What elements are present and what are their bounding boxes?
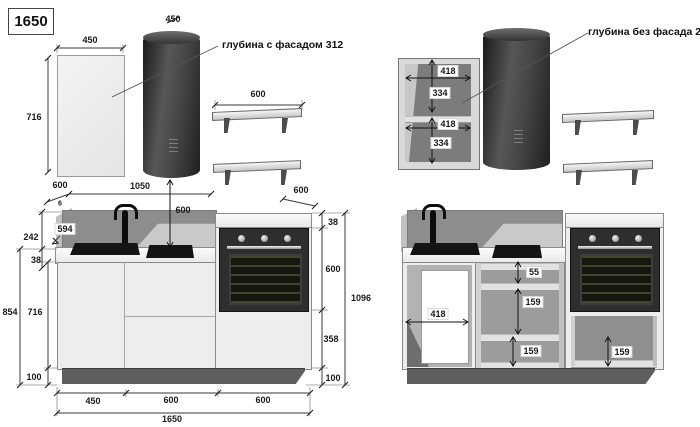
hood-cylinder — [143, 33, 200, 178]
shelf-bracket — [632, 170, 638, 185]
dim-width-2: 600 — [163, 395, 178, 405]
wall-door-panel — [57, 55, 125, 177]
dim-left-total: 854 — [2, 307, 17, 317]
dim-width-3: 600 — [255, 395, 270, 405]
wall-shelf — [562, 112, 654, 121]
dim-hob-drop: 600 — [175, 205, 190, 215]
shelf-bracket — [281, 170, 287, 185]
oven-tower-counter — [566, 214, 663, 228]
sink — [410, 243, 480, 255]
side-rail — [559, 263, 564, 369]
hood-top-cap — [143, 31, 200, 44]
scale-box: 1650 — [8, 8, 54, 35]
hood-cylinder — [483, 30, 550, 170]
dim-oven-box: 159 — [612, 347, 631, 357]
plinth — [62, 368, 305, 384]
hood-vents — [514, 130, 523, 146]
dim-plinth-right: 100 — [325, 373, 340, 383]
oven-tower — [215, 213, 312, 370]
faucet-tip — [422, 214, 425, 220]
dim-shelf-width: 600 — [250, 89, 265, 99]
dim-width-1: 450 — [85, 396, 100, 406]
dim-wallcab-height-bottom: 334 — [431, 138, 450, 148]
dim-hood-span: 1050 — [130, 181, 150, 191]
sink — [70, 243, 140, 255]
drawer-shelf — [476, 334, 564, 342]
kitchen-drawing: 1650 450 450 716 600 600 глубина с фасад… — [0, 0, 700, 427]
oven-drawer-open — [571, 316, 657, 366]
drawer-shelf — [476, 283, 564, 291]
dim-total-height: 1096 — [351, 293, 371, 303]
dim-oven-top: 38 — [328, 217, 338, 227]
oven-knob — [635, 235, 642, 242]
scale-label: 1650 — [14, 13, 47, 30]
side-rail — [476, 263, 481, 369]
shelf-bracket — [633, 120, 639, 135]
oven-window — [229, 254, 303, 305]
wall-shelf — [563, 162, 653, 171]
dim-oven-height: 600 — [325, 264, 340, 274]
hob — [492, 245, 542, 258]
dim-drawer-height: 358 — [323, 334, 338, 344]
oven-knob — [238, 235, 245, 242]
wall-shelf — [212, 110, 302, 119]
note-with-facade: глубина с фасадом 312 — [222, 39, 343, 51]
dim-plinth-left: 100 — [26, 372, 41, 382]
side-rail — [571, 316, 575, 366]
oven-handle — [227, 246, 301, 249]
oven-knob — [589, 235, 596, 242]
dim-total-width: 1650 — [162, 414, 182, 424]
faucet-tip — [114, 214, 117, 220]
dim-sink-inner-width: 418 — [428, 309, 447, 319]
dim-worktop-thickness: 38 — [31, 255, 41, 265]
oven-tower-counter — [216, 214, 311, 228]
dim-box-2: 159 — [521, 346, 540, 356]
shelf-bracket — [576, 170, 582, 185]
dim-wallcab-height-top: 334 — [430, 88, 449, 98]
shelf-bracket — [575, 120, 581, 135]
note-without-facade: глубина без фасада 296 — [588, 26, 700, 38]
oven-handle — [578, 246, 652, 249]
dim-box-1: 159 — [523, 297, 542, 307]
dim-cabinet-height: 716 — [27, 307, 42, 317]
drawer-bottom — [571, 360, 657, 368]
dim-backsplash-height: 242 — [23, 232, 38, 242]
interior-wedge — [405, 64, 427, 162]
dim-shelf-depth: 600 — [293, 185, 308, 195]
oven-knob — [261, 235, 268, 242]
oven-window — [580, 254, 654, 305]
dim-counter-depth: 600 — [52, 180, 67, 190]
dim-top-gap: 55 — [527, 267, 541, 277]
drawer-cabinet-open — [475, 262, 565, 370]
top-rail — [476, 263, 564, 271]
dim-door-width: 450 — [82, 35, 97, 45]
hood-top-cap — [483, 28, 550, 41]
oven-knob — [284, 235, 291, 242]
oven — [219, 228, 309, 312]
shelf-bracket — [225, 170, 231, 185]
dim-hood-width: 450 — [165, 14, 180, 24]
wall-shelf — [213, 162, 301, 171]
faucet-pipe — [122, 210, 128, 247]
faucet-pipe — [430, 210, 436, 247]
hob — [146, 245, 194, 258]
dim-gap: 6 — [58, 201, 62, 208]
oven — [570, 228, 660, 312]
drawer-divider — [124, 316, 216, 317]
dim-wallcab-width-top: 418 — [438, 66, 457, 76]
dim-wallcab-width-bottom: 418 — [438, 119, 457, 129]
dim-worktop-depth: 594 — [55, 224, 74, 234]
shelf-bracket — [282, 118, 288, 133]
oven-knob — [612, 235, 619, 242]
dim-door-height: 716 — [26, 112, 41, 122]
side-rail — [653, 316, 657, 366]
plinth — [407, 368, 655, 384]
hood-vents — [169, 139, 178, 155]
shelf-bracket — [224, 118, 230, 133]
